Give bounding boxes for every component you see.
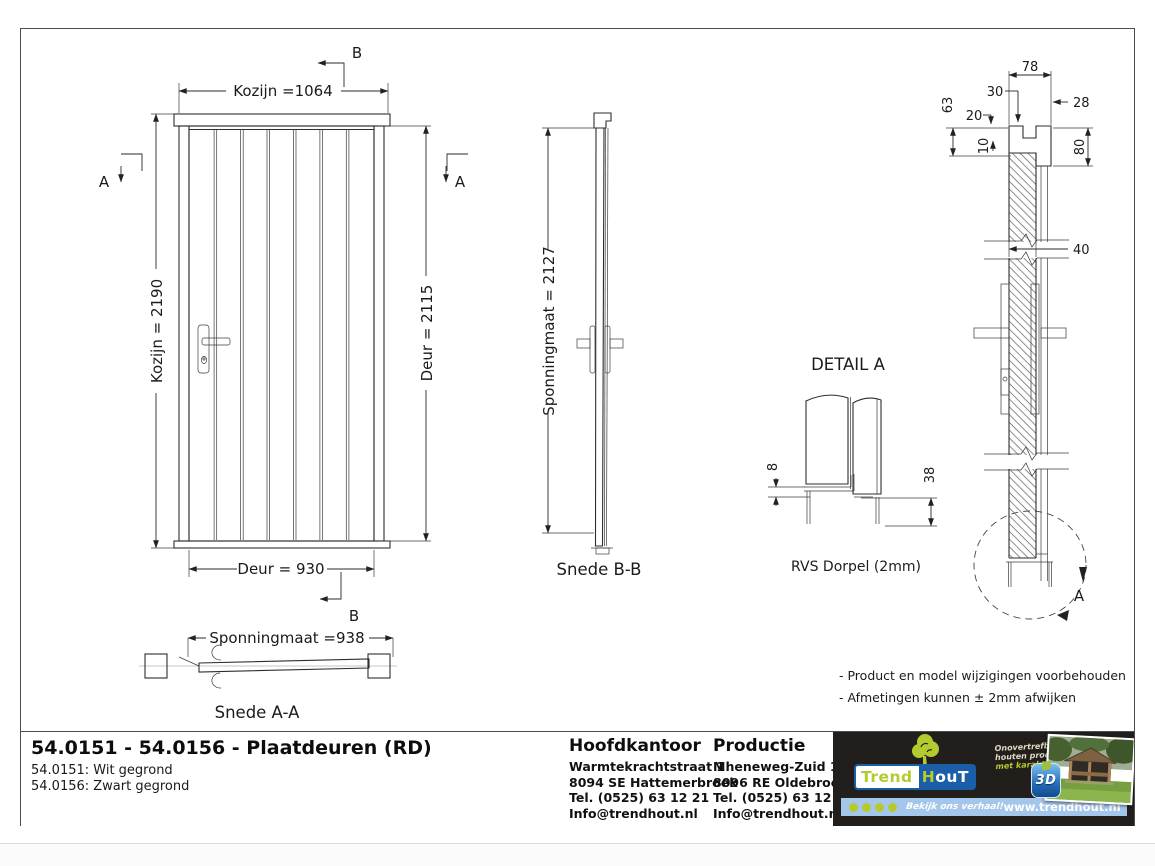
hoofdkantoor-city: 8094 SE Hattemerbroek [569, 775, 719, 791]
section-marker-a-right: A [446, 154, 468, 191]
detail-marker-a: A [1074, 587, 1085, 605]
rvs-dorpel-profile [804, 474, 879, 524]
svg-text:B: B [352, 44, 362, 62]
hoofdkantoor-tel: Tel. (0525) 63 12 21 [569, 790, 719, 806]
technical-drawing: Kozijn =1064 Kozijn = 2190 Deur = 2115 [21, 29, 1134, 731]
strip-dot-icon [875, 803, 884, 812]
title-block: 54.0151 - 54.0156 - Plaatdeuren (RD) 54.… [21, 731, 1134, 826]
dim-78: 78 [1022, 60, 1039, 75]
trendhout-logo: Trend HouT [854, 764, 976, 790]
dim-10: 10 [977, 138, 992, 155]
svg-text:A: A [99, 173, 110, 191]
detail-a: DETAIL A 8 [766, 355, 938, 575]
dim-80: 80 [1073, 139, 1088, 156]
hoofdkantoor-email: Info@trendhout.nl [569, 806, 719, 822]
dim-kozijn-height: Kozijn = 2190 [148, 279, 166, 383]
dim-40: 40 [1073, 243, 1090, 258]
logo-text-trend: Trend [856, 768, 913, 786]
logo-text-hout: HouT [919, 766, 974, 788]
3d-viewer-badge: 3D [1031, 763, 1061, 798]
dim-63: 63 [941, 97, 956, 114]
label-snede-aa: Snede A-A [215, 703, 300, 722]
section-marker-b-top: B [318, 44, 362, 87]
dim-28: 28 [1073, 96, 1090, 111]
strip-dot-icon [849, 803, 858, 812]
door-planks [214, 129, 349, 540]
detail-a-caption: RVS Dorpel (2mm) [791, 559, 921, 575]
section-a-a: Sponningmaat =938 Snede A-A [139, 629, 397, 722]
drawing-title: 54.0151 - 54.0156 - Plaatdeuren (RD) [31, 737, 432, 759]
dorpel-section [1006, 554, 1053, 587]
hoofdkantoor-heading: Hoofdkantoor [569, 736, 719, 756]
section-marker-b-bottom: B [320, 572, 359, 625]
strip-dot-icon [888, 803, 897, 812]
detail-a-title: DETAIL A [811, 355, 886, 374]
strip-slogan: Bekijk ons verhaal! [905, 802, 1004, 812]
strip-dot-icon [862, 803, 871, 812]
dim-38: 38 [923, 467, 938, 484]
note-1: - Product en model wijzigingen voorbehou… [839, 668, 1126, 683]
page-margin-area [0, 844, 1155, 866]
front-view: Kozijn =1064 Kozijn = 2190 Deur = 2115 [99, 44, 468, 625]
trendhout-brand-banner: Trend HouT Onovertrefbare houten product… [833, 732, 1134, 826]
badge-leaf-icon [1042, 761, 1051, 770]
svg-text:B: B [349, 607, 359, 625]
dim-sponningmaat-aa: Sponningmaat =938 [209, 629, 364, 647]
svg-text:A: A [455, 173, 466, 191]
variant-wit: 54.0151: Wit gegrond [31, 763, 173, 778]
section-b-b: Sponningmaat = 2127 Snede B-B [539, 113, 641, 579]
dim-30: 30 [987, 85, 1004, 100]
dim-deur-width: Deur = 930 [237, 560, 324, 578]
variant-zwart: 54.0156: Zwart gegrond [31, 779, 189, 794]
note-2: - Afmetingen kunnen ± 2mm afwijken [839, 690, 1076, 705]
drawing-sheet-border: Kozijn =1064 Kozijn = 2190 Deur = 2115 [20, 28, 1135, 826]
dim-8: 8 [766, 463, 781, 471]
hoofdkantoor-address: Hoofdkantoor Warmtekrachtstraat 1 8094 S… [569, 736, 719, 821]
dim-kozijn-width: Kozijn =1064 [233, 82, 333, 100]
dim-deur-height: Deur = 2115 [418, 285, 436, 382]
label-snede-bb: Snede B-B [557, 560, 642, 579]
vertical-frame-section: A 78 30 28 63 20 10 80 [941, 60, 1093, 621]
handle-side-view [577, 326, 623, 373]
dim-20: 20 [966, 109, 983, 124]
dim-sponningmaat-bb: Sponningmaat = 2127 [540, 246, 558, 416]
section-marker-a-left: A [99, 154, 142, 191]
hoofdkantoor-street: Warmtekrachtstraat 1 [569, 759, 719, 775]
drawing-notes: - Product en model wijzigingen voorbehou… [839, 668, 1126, 705]
